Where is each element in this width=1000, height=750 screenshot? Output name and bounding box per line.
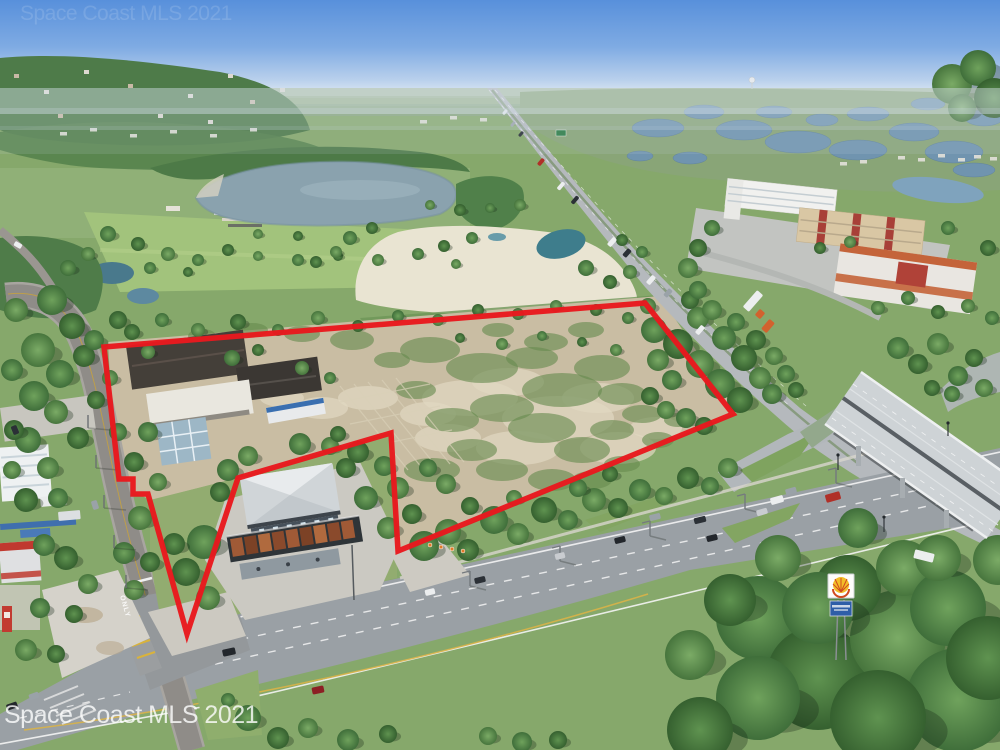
- tree: [37, 285, 67, 315]
- tree: [531, 497, 557, 523]
- tree: [1, 359, 23, 381]
- tree: [676, 408, 696, 428]
- tree: [578, 260, 594, 276]
- distant-building: [860, 160, 867, 164]
- scrub-patch: [574, 355, 630, 381]
- tree: [636, 246, 648, 258]
- tree: [657, 401, 675, 419]
- scrub-patch: [482, 323, 514, 337]
- distant-building: [974, 155, 981, 159]
- tree: [838, 508, 878, 548]
- distant-building: [990, 157, 997, 161]
- tree: [253, 229, 263, 239]
- tree: [113, 542, 135, 564]
- scrub-patch: [476, 459, 528, 481]
- construction-barrel: [428, 543, 432, 547]
- tree: [704, 574, 756, 626]
- tree: [558, 510, 578, 530]
- tree: [755, 535, 801, 581]
- tree: [155, 313, 169, 327]
- tree: [60, 260, 76, 276]
- tree: [221, 693, 235, 707]
- tree: [451, 259, 461, 269]
- tree: [210, 482, 230, 502]
- tree: [252, 344, 264, 356]
- tree: [191, 323, 205, 337]
- tree: [192, 254, 204, 266]
- tree: [948, 366, 968, 386]
- tree: [727, 313, 745, 331]
- tree: [765, 347, 783, 365]
- tree: [924, 380, 940, 396]
- tree: [901, 291, 915, 305]
- tree: [718, 458, 738, 478]
- tree: [324, 372, 336, 384]
- tree: [788, 382, 804, 398]
- tree: [402, 504, 422, 524]
- tree: [438, 240, 450, 252]
- tree: [455, 333, 465, 343]
- tree: [908, 354, 928, 374]
- tree: [44, 400, 68, 424]
- tree: [980, 240, 996, 256]
- tree: [330, 426, 346, 442]
- aerial-photo: ONLY: [0, 0, 1000, 750]
- pond-small-2: [127, 288, 159, 304]
- scrub-patch: [374, 352, 410, 368]
- tree: [267, 727, 289, 749]
- tree: [87, 391, 105, 409]
- tree: [975, 379, 993, 397]
- tree: [183, 267, 193, 277]
- tree: [100, 226, 116, 242]
- tree: [124, 452, 144, 472]
- tree: [746, 330, 766, 350]
- distant-building: [958, 158, 965, 162]
- tree: [238, 446, 258, 466]
- tree: [689, 281, 707, 299]
- tree: [616, 234, 628, 246]
- tree: [15, 639, 37, 661]
- tree: [37, 457, 59, 479]
- marsh-pond: [953, 163, 995, 177]
- tree: [33, 534, 55, 556]
- tree: [144, 262, 156, 274]
- distant-building: [898, 156, 905, 160]
- tree: [230, 314, 246, 330]
- tree: [366, 222, 378, 234]
- tree: [295, 361, 309, 375]
- construction-barrel: [450, 547, 454, 551]
- tree: [293, 231, 303, 241]
- tree: [603, 275, 617, 289]
- tree: [549, 731, 567, 749]
- tree: [655, 487, 673, 505]
- scrub-patch: [554, 437, 610, 463]
- scrub-patch: [598, 383, 646, 405]
- distant-building: [918, 158, 925, 162]
- tree: [814, 242, 826, 254]
- distant-house: [128, 84, 133, 88]
- tree: [961, 299, 975, 313]
- tree: [665, 630, 715, 680]
- tree: [124, 324, 140, 340]
- tree: [48, 488, 68, 508]
- tree: [14, 488, 38, 512]
- tree: [21, 333, 55, 367]
- tree: [30, 598, 50, 618]
- tree: [461, 497, 479, 515]
- blue-glass-canopy: [156, 417, 211, 466]
- scrub-patch: [330, 330, 374, 350]
- scrub-patch: [508, 413, 576, 443]
- tree: [224, 350, 240, 366]
- tree: [47, 645, 65, 663]
- scrub-patch: [590, 420, 634, 440]
- price-sign: [830, 601, 852, 616]
- tree: [46, 360, 74, 388]
- tree: [629, 479, 651, 501]
- tree: [965, 349, 983, 367]
- tree: [292, 254, 304, 266]
- tree: [84, 330, 104, 350]
- tree: [109, 311, 127, 329]
- construction-barrel: [461, 549, 465, 553]
- tree: [927, 333, 949, 355]
- tree: [507, 523, 529, 545]
- tree: [412, 248, 424, 260]
- tree: [622, 312, 634, 324]
- tree: [677, 467, 699, 489]
- tree: [623, 265, 637, 279]
- tree: [343, 231, 357, 245]
- tree: [222, 244, 234, 256]
- tree: [379, 725, 397, 743]
- tree: [662, 370, 682, 390]
- tree: [161, 247, 175, 261]
- construction-barrel: [439, 545, 443, 549]
- tree: [131, 237, 145, 251]
- tree: [689, 239, 707, 257]
- tree: [479, 727, 497, 745]
- tree: [3, 461, 21, 479]
- tree: [704, 220, 720, 236]
- tree: [59, 313, 85, 339]
- distant-house: [228, 74, 233, 78]
- mls-aerial-listing-photo: ONLY Space Coast MLS 2021 Space Coast ML…: [0, 0, 1000, 750]
- tree: [149, 473, 167, 491]
- tree: [496, 338, 508, 350]
- scrub-patch: [425, 408, 479, 432]
- tree: [387, 477, 409, 499]
- tree: [641, 387, 659, 405]
- tree: [931, 305, 945, 319]
- tree: [141, 345, 155, 359]
- tree: [65, 605, 83, 623]
- tree: [647, 349, 669, 371]
- tree: [235, 705, 261, 731]
- tree: [336, 458, 356, 478]
- tree: [514, 199, 526, 211]
- tree: [466, 232, 478, 244]
- tree: [577, 337, 587, 347]
- tree: [454, 204, 466, 216]
- tree: [457, 539, 479, 561]
- tree: [253, 251, 263, 261]
- distant-house: [14, 74, 19, 78]
- distant-house: [84, 70, 89, 74]
- tree: [419, 459, 437, 477]
- tree: [330, 246, 342, 258]
- tree: [702, 300, 722, 320]
- tree: [172, 558, 200, 586]
- distant-building: [840, 162, 847, 166]
- tree: [337, 729, 359, 750]
- tree: [871, 301, 885, 315]
- scrub-patch: [568, 322, 604, 338]
- tree: [4, 298, 28, 322]
- tree: [485, 203, 495, 213]
- tree: [777, 365, 795, 383]
- tree: [701, 477, 719, 495]
- tree: [310, 256, 322, 268]
- distant-building: [938, 154, 945, 158]
- tree: [944, 386, 960, 402]
- tree: [610, 344, 622, 356]
- tree: [19, 381, 49, 411]
- tree: [81, 247, 95, 261]
- tree: [436, 474, 456, 494]
- tree: [67, 427, 89, 449]
- tree: [140, 552, 160, 572]
- tree: [425, 200, 435, 210]
- tree: [844, 236, 856, 248]
- tree: [678, 258, 698, 278]
- tree: [372, 254, 384, 266]
- tree: [78, 574, 98, 594]
- tree: [887, 337, 909, 359]
- scrub-patch: [622, 405, 662, 423]
- tree: [608, 498, 628, 518]
- tree: [311, 311, 325, 325]
- tree: [985, 311, 999, 325]
- red-pole-sign: [2, 606, 12, 632]
- tree: [128, 506, 152, 530]
- tree: [762, 384, 782, 404]
- box-truck-2: [58, 510, 81, 521]
- tree: [138, 422, 158, 442]
- tree: [537, 331, 547, 341]
- tree: [298, 718, 318, 738]
- tree: [941, 221, 955, 235]
- tree: [354, 486, 378, 510]
- tree: [289, 433, 311, 455]
